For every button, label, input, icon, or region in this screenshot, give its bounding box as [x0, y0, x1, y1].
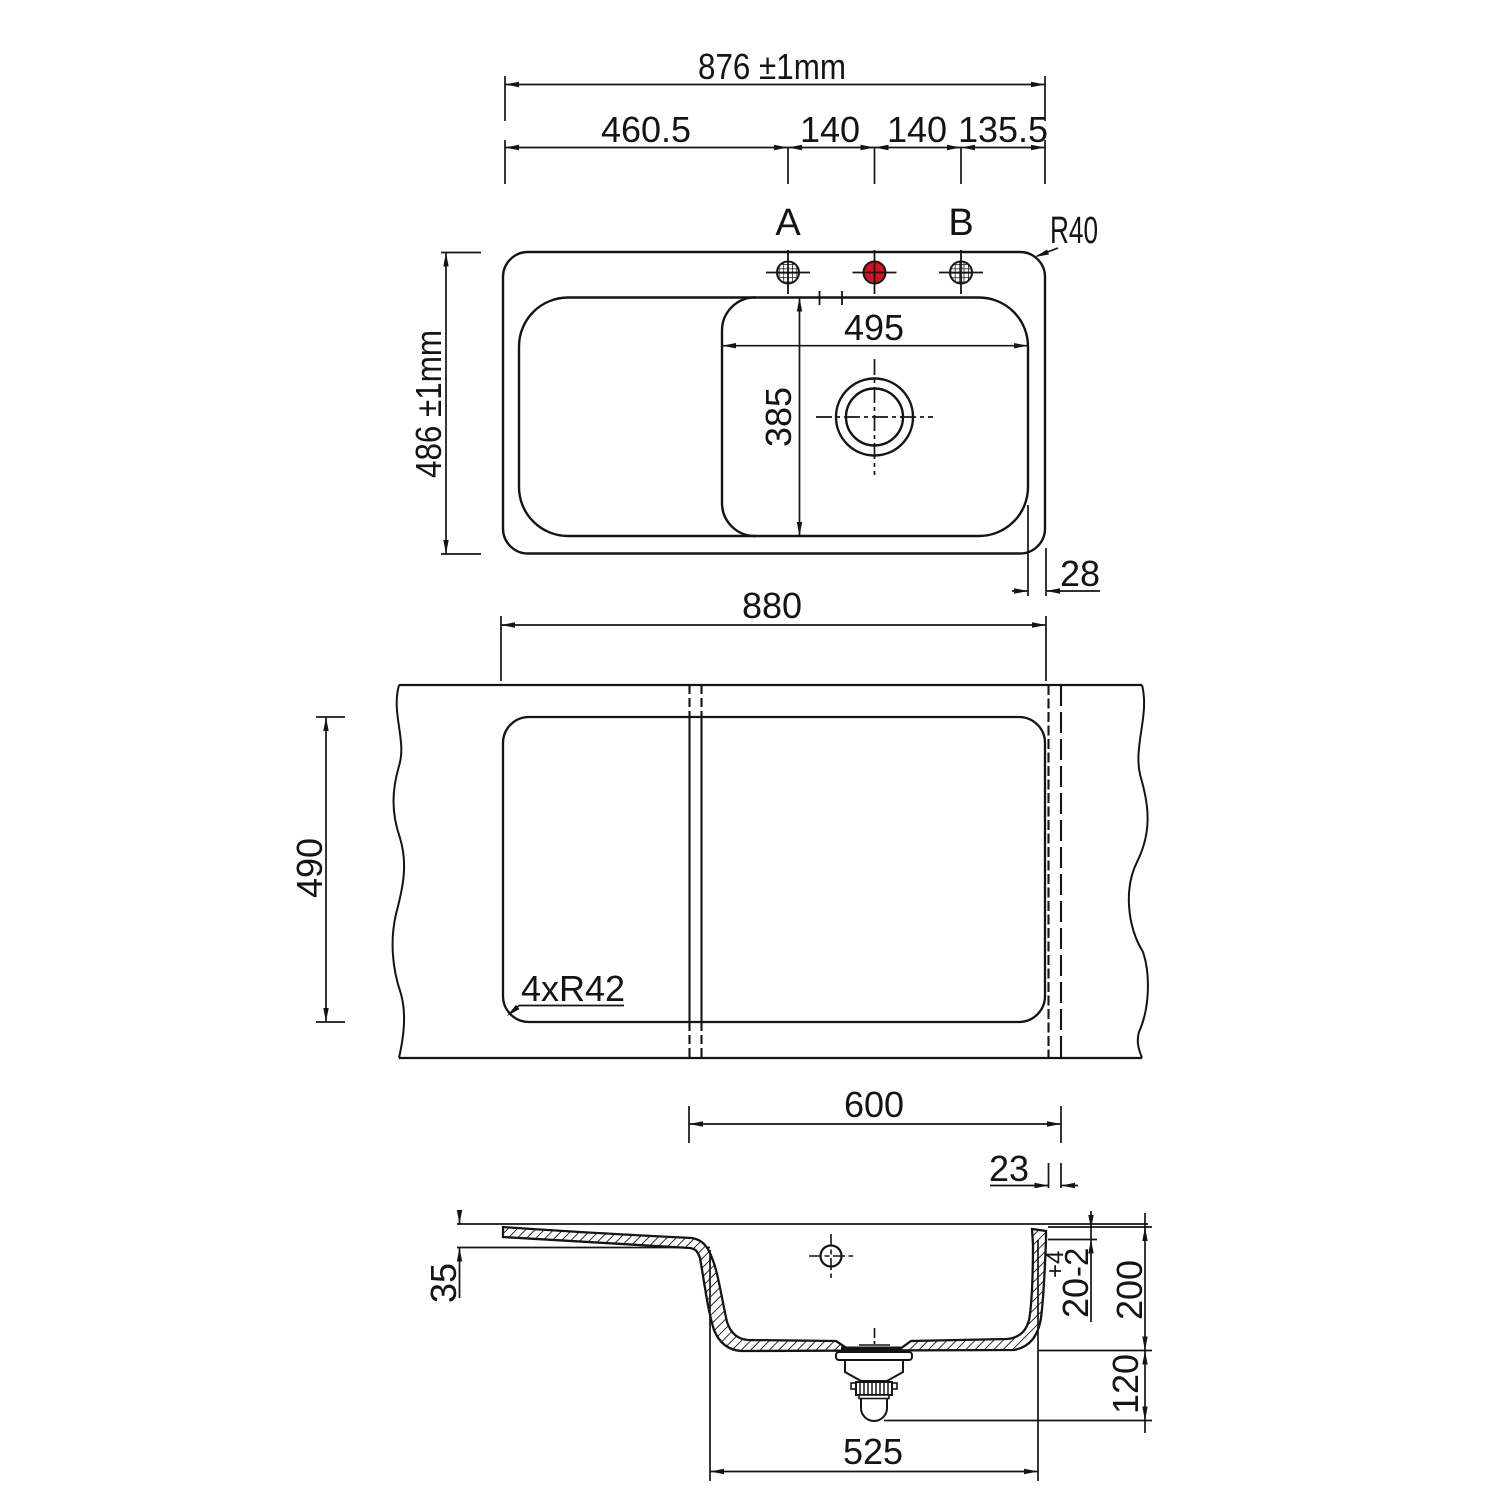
- svg-text:876 ±1mm: 876 ±1mm: [698, 46, 846, 87]
- svg-text:4xR42: 4xR42: [521, 968, 625, 1009]
- svg-text:600: 600: [844, 1084, 904, 1125]
- svg-text:R40: R40: [1050, 210, 1098, 252]
- svg-text:23: 23: [989, 1148, 1029, 1189]
- svg-text:B: B: [948, 202, 973, 244]
- svg-text:495: 495: [844, 307, 904, 348]
- svg-text:140: 140: [887, 109, 947, 150]
- svg-text:486 ±1mm: 486 ±1mm: [408, 330, 449, 478]
- svg-text:385: 385: [758, 387, 799, 447]
- svg-text:135.5: 135.5: [958, 109, 1048, 150]
- svg-text:460.5: 460.5: [601, 109, 691, 150]
- svg-text:880: 880: [742, 585, 802, 626]
- svg-text:200: 200: [1109, 1260, 1150, 1320]
- svg-text:+4: +4: [1042, 1251, 1069, 1278]
- svg-text:140: 140: [800, 109, 860, 150]
- svg-text:490: 490: [289, 838, 330, 898]
- svg-text:28: 28: [1060, 553, 1100, 594]
- svg-text:35: 35: [423, 1263, 464, 1303]
- svg-text:525: 525: [843, 1431, 903, 1472]
- svg-text:20: 20: [1055, 1278, 1096, 1318]
- svg-text:120: 120: [1105, 1354, 1146, 1414]
- svg-text:A: A: [775, 202, 801, 244]
